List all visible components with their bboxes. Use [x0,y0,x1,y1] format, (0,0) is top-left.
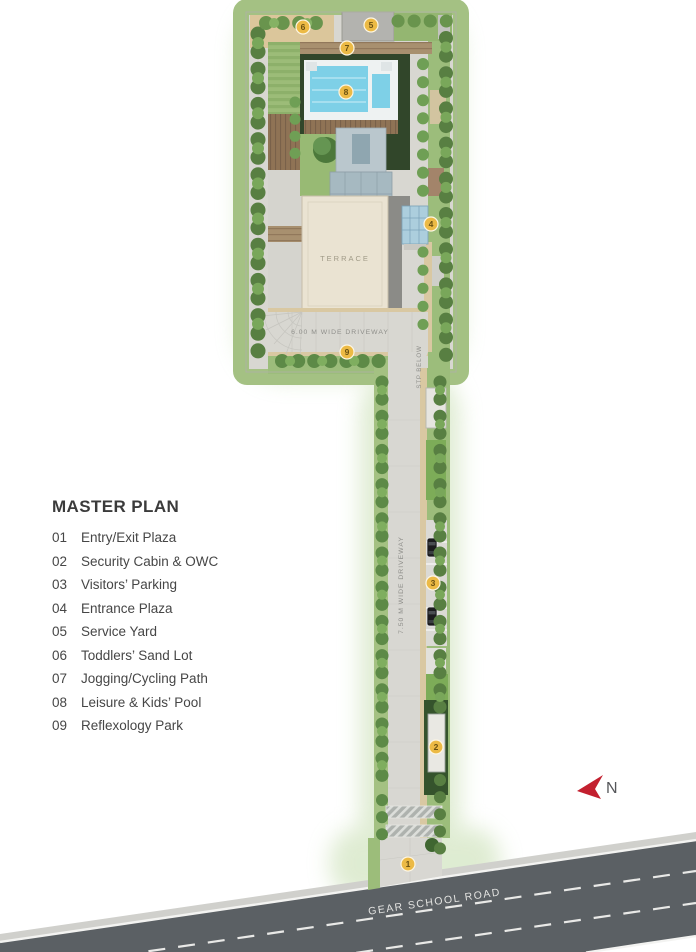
svg-text:7: 7 [345,43,350,53]
svg-text:8: 8 [344,87,349,97]
svg-text:3: 3 [431,578,436,588]
legend-item-label: Toddlers’ Sand Lot [81,649,282,664]
legend-item-number: 06 [52,649,81,664]
legend-item-number: 07 [52,672,81,687]
marker-9: 9 [340,345,354,359]
legend-item: 06 Toddlers’ Sand Lot [52,649,282,664]
svg-text:4: 4 [429,219,434,229]
entrance-canopy [402,206,428,250]
svg-text:6: 6 [301,22,306,32]
legend-item-number: 08 [52,696,81,711]
marker-7: 7 [340,41,354,55]
marker-1: 1 [401,857,415,871]
driveway-7-5m-label: 7.50 M WIDE DRIVEWAY [398,536,405,634]
marker-6: 6 [296,20,310,34]
terrace-label: TERRACE [320,254,370,263]
legend-item-label: Visitors’ Parking [81,578,282,593]
legend-item: 08 Leisure & Kids’ Pool [52,696,282,711]
svg-text:2: 2 [434,742,439,752]
legend-item: 05 Service Yard [52,625,282,640]
legend: MASTER PLAN 01 Entry/Exit Plaza 02 Secur… [52,497,282,743]
site-plan: TERRACE 6.00 M WIDE DRIVEWAY 7.50 M WIDE… [0,0,696,952]
legend-item: 09 Reflexology Park [52,719,282,734]
north-indicator: N [577,775,618,799]
crossing [386,825,442,837]
legend-item-label: Jogging/Cycling Path [81,672,282,687]
crossing [386,806,442,818]
legend-title: MASTER PLAN [52,497,282,516]
marker-2: 2 [429,740,443,754]
legend-item-label: Leisure & Kids’ Pool [81,696,282,711]
svg-text:5: 5 [369,20,374,30]
legend-item-label: Entrance Plaza [81,602,282,617]
svg-text:9: 9 [345,347,350,357]
legend-item: 03 Visitors’ Parking [52,578,282,593]
legend-item: 07 Jogging/Cycling Path [52,672,282,687]
marker-8: 8 [339,85,353,99]
legend-item: 02 Security Cabin & OWC [52,555,282,570]
marker-4: 4 [424,217,438,231]
legend-item-number: 09 [52,719,81,734]
legend-item-label: Service Yard [81,625,282,640]
legend-item-label: Reflexology Park [81,719,282,734]
jogging-cycling-path [300,42,432,54]
legend-item-number: 04 [52,602,81,617]
north-arrow-icon [577,775,603,799]
legend-item-number: 02 [52,555,81,570]
svg-text:1: 1 [406,859,411,869]
legend-item: 04 Entrance Plaza [52,602,282,617]
marker-3: 3 [426,576,440,590]
legend-item: 01 Entry/Exit Plaza [52,531,282,546]
legend-item-label: Security Cabin & OWC [81,555,282,570]
marker-5: 5 [364,18,378,32]
legend-item-number: 03 [52,578,81,593]
driveway-6m-label: 6.00 M WIDE DRIVEWAY [291,329,389,336]
legend-item-label: Entry/Exit Plaza [81,531,282,546]
legend-item-number: 01 [52,531,81,546]
north-label: N [606,780,618,797]
legend-item-number: 05 [52,625,81,640]
stp-below-label: STP BELOW [416,345,423,388]
